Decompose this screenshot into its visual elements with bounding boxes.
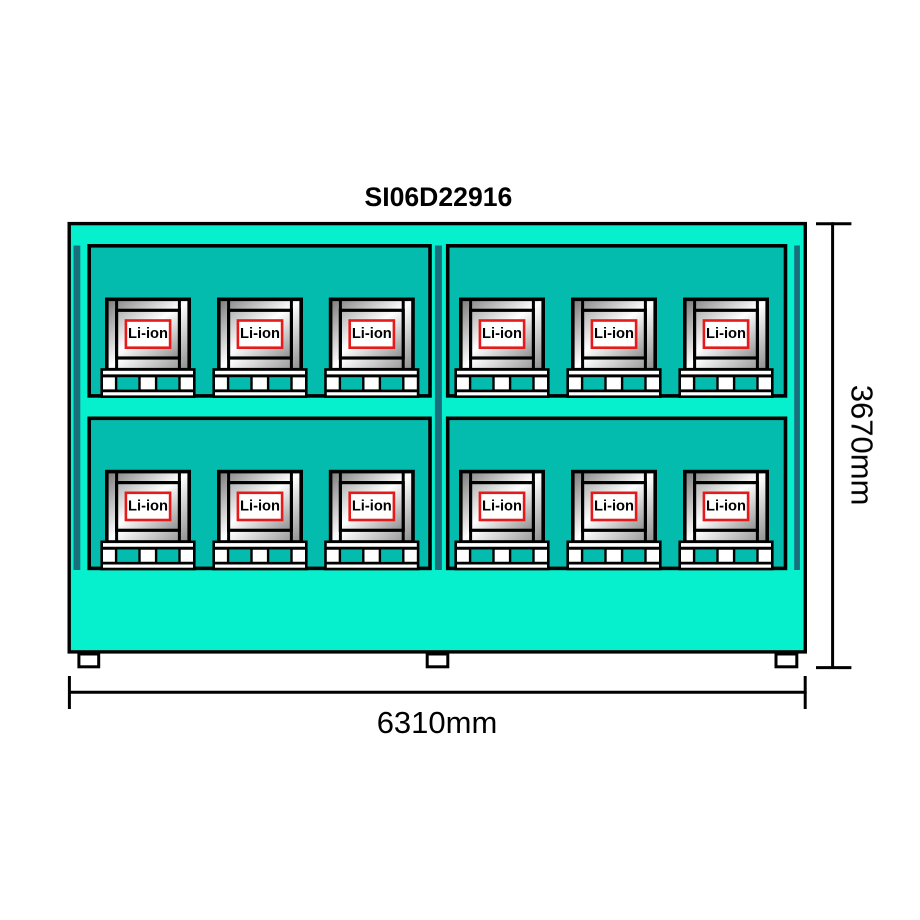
svg-text:Li-ion: Li-ion	[352, 498, 392, 514]
svg-text:Li-ion: Li-ion	[128, 326, 168, 342]
svg-text:Li-ion: Li-ion	[240, 326, 280, 342]
svg-text:Li-ion: Li-ion	[482, 326, 522, 342]
svg-text:Li-ion: Li-ion	[240, 498, 280, 514]
svg-text:Li-ion: Li-ion	[128, 498, 168, 514]
svg-text:3670mm: 3670mm	[845, 385, 880, 506]
svg-text:6310mm: 6310mm	[377, 705, 498, 740]
svg-text:Li-ion: Li-ion	[352, 326, 392, 342]
svg-text:Li-ion: Li-ion	[706, 498, 746, 514]
svg-text:SI06D22916: SI06D22916	[364, 182, 512, 212]
svg-text:Li-ion: Li-ion	[706, 326, 746, 342]
svg-text:Li-ion: Li-ion	[594, 498, 634, 514]
svg-text:Li-ion: Li-ion	[482, 498, 522, 514]
svg-text:Li-ion: Li-ion	[594, 326, 634, 342]
